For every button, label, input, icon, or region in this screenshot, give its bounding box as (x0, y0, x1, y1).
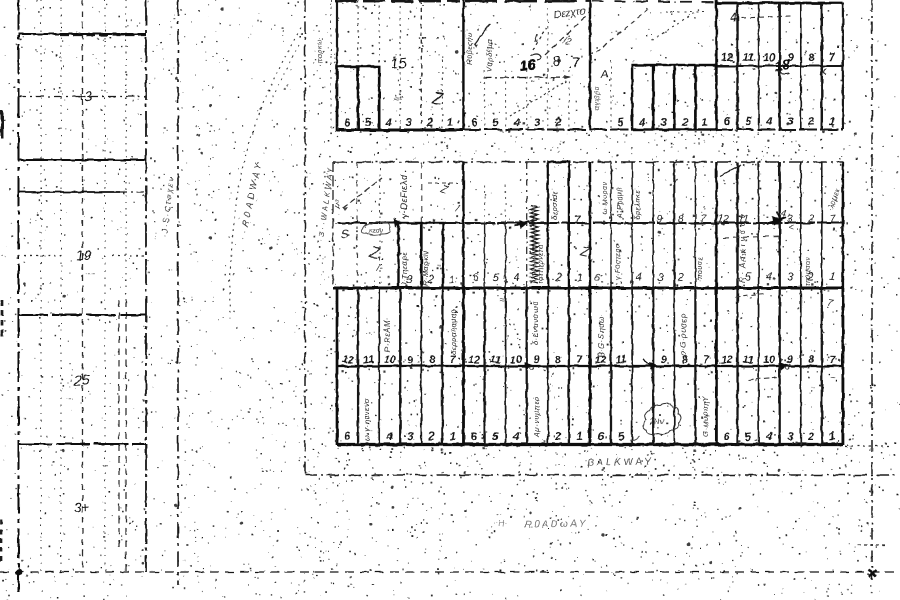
svg-text:·· ·: ·· · (555, 460, 566, 470)
svg-text:16: 16 (519, 57, 538, 75)
svg-text:3+: 3+ (74, 500, 90, 516)
svg-text:1: 1 (576, 431, 583, 443)
svg-text:δ·Eνανσ·υσ: δ·Eνανσ·υσ (531, 301, 540, 345)
svg-text:3: 3 (405, 117, 412, 129)
svg-text:···: ··· (152, 231, 160, 240)
svg-text:β·G·Sηαω·: β·G·Sηαω· (597, 313, 606, 358)
svg-text:ρ·G·ρυσερ: ρ·G·ρυσερ (679, 313, 688, 357)
svg-text:8: 8 (808, 354, 814, 366)
svg-text:10: 10 (384, 354, 396, 366)
svg-text:12: 12 (468, 354, 480, 366)
svg-text:9: 9 (660, 354, 667, 366)
svg-text:1: 1 (446, 117, 453, 129)
svg-text:ω·Mοραν: ω·Mοραν (602, 181, 609, 214)
svg-text:25: 25 (73, 373, 90, 389)
svg-text:18: 18 (773, 56, 791, 74)
svg-text:1: 1 (829, 271, 837, 284)
svg-text:12: 12 (720, 52, 734, 64)
svg-text:4: 4 (385, 117, 393, 129)
svg-text:S: S (340, 227, 349, 242)
svg-text:11: 11 (489, 353, 502, 366)
svg-text:2: 2 (554, 431, 562, 443)
svg-text:4: 4 (638, 117, 646, 129)
svg-text:11: 11 (742, 354, 754, 367)
svg-text:ο: ο (530, 362, 535, 372)
svg-text:γ·Fοστερσ: γ·Fοστερσ (615, 243, 622, 280)
svg-text:11: 11 (362, 353, 374, 366)
svg-text:10: 10 (763, 354, 775, 366)
svg-text:ω·γ·ηανενσ: ω·γ·ηανενσ (362, 398, 371, 441)
svg-text:6: 6 (597, 431, 604, 443)
svg-text:2: 2 (427, 431, 436, 443)
svg-text:τφττιερνετα: τφττιερνετα (538, 244, 545, 284)
svg-text:12: 12 (341, 353, 354, 366)
svg-text:1: 1 (828, 431, 836, 444)
svg-text:2: 2 (425, 117, 433, 129)
svg-text:·: · (636, 214, 639, 224)
svg-text:19: 19 (76, 248, 92, 264)
svg-text:·παρκω·: ·παρκω· (317, 36, 324, 66)
svg-text:3: 3 (787, 271, 794, 283)
svg-text:·-·: ·-· (66, 394, 74, 403)
svg-text:~: ~ (830, 373, 836, 384)
svg-text:P·RεΑM·: P·RεΑM· (383, 317, 392, 352)
svg-text:δερραηαμαρ: δερραηαμαρ (449, 308, 458, 355)
svg-text:4: 4 (766, 271, 773, 283)
svg-text:8: 8 (678, 214, 685, 225)
svg-text:R1π: R1π (741, 248, 748, 262)
svg-text:Αμ·νυμπερ: Αμ·νυμπερ (532, 396, 541, 438)
svg-text:Rοβεςήυ: Rοβεςήυ (465, 33, 474, 65)
svg-text:1: 1 (450, 431, 457, 443)
svg-text:6: 6 (594, 273, 601, 284)
svg-text:A: A (599, 67, 609, 82)
svg-text:1: 1 (448, 274, 455, 286)
svg-text:15: 15 (390, 54, 407, 71)
svg-text:≈: ≈ (499, 295, 505, 306)
svg-text:2Nν: 2Nν (648, 416, 664, 426)
svg-text:αγιββσ: αγιββσ (594, 85, 601, 110)
svg-text:2: 2 (807, 431, 815, 443)
svg-text:γ-DεFιελd: γ-DεFιελd (399, 174, 409, 218)
svg-text:×: × (819, 63, 827, 79)
svg-text:2: 2 (676, 272, 685, 284)
svg-text:6: 6 (724, 431, 731, 443)
svg-text:κεον: κεον (369, 228, 383, 235)
svg-text:··Η·: ··Η· (493, 518, 508, 528)
svg-text:11: 11 (615, 353, 628, 366)
svg-text:3: 3 (787, 116, 794, 128)
svg-text:4: 4 (635, 272, 642, 285)
svg-text:δερσιdε: δερσιdε (550, 191, 559, 220)
svg-text:12: 12 (721, 354, 733, 366)
svg-text:4: 4 (765, 116, 773, 128)
svg-text:4: 4 (386, 431, 394, 443)
svg-text:<: < (788, 222, 793, 232)
svg-text:4: 4 (765, 431, 773, 443)
svg-text:1: 1 (576, 272, 583, 284)
svg-text:4: 4 (513, 272, 520, 284)
svg-text:·πουσε: ·πουσε (697, 257, 704, 282)
svg-text:11: 11 (738, 214, 750, 226)
svg-text:10: 10 (510, 354, 523, 367)
svg-text:R0ADωAY: R0ADωAY (524, 518, 587, 530)
svg-text:Α·Pραμβ: Α·Pραμβ (617, 187, 624, 219)
svg-text:6: 6 (344, 431, 351, 443)
svg-text:·-·-: ·-·- (85, 269, 96, 278)
svg-text:2: 2 (807, 214, 815, 225)
svg-text:11: 11 (742, 52, 755, 65)
